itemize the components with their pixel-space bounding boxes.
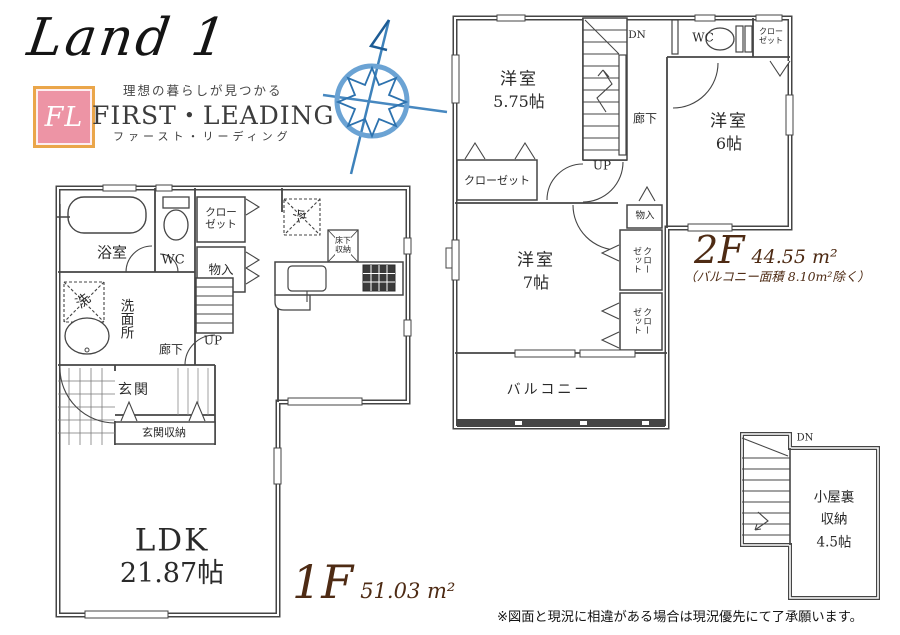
label-up-1f: UP xyxy=(204,334,222,347)
compass-rose-icon xyxy=(323,20,447,174)
label-hallway-1f: 廊下 xyxy=(159,343,183,356)
label-room7-name: 洋室 xyxy=(517,251,555,270)
floor2-area: 44.55 m² xyxy=(752,246,838,268)
company-name-kana: ファースト・リーディング xyxy=(113,128,292,144)
floor1-title-text: 1F xyxy=(292,555,353,609)
label-ldk-size: 21.87帖 xyxy=(120,559,224,589)
label-underfloor: 床下 収納 xyxy=(335,237,351,255)
floor2-plan xyxy=(446,15,793,427)
disclaimer-text: ※図面と現況に相違がある場合は現況優先にて了承願います。 xyxy=(497,606,863,625)
label-closet-1f: クロー ゼット xyxy=(205,207,237,231)
company-name-en: FIRST・LEADING xyxy=(92,96,335,132)
label-entrance-storage: 玄関収納 xyxy=(142,427,186,439)
label-room6-name: 洋室 xyxy=(710,112,748,131)
toilet-1f-icon xyxy=(163,197,189,240)
stairs-2f xyxy=(583,18,627,160)
land1-logo: Land 1 xyxy=(24,8,232,68)
label-closet-v2: クロー ゼット xyxy=(631,308,651,335)
label-balcony: バルコニー xyxy=(507,383,592,399)
basin-icon xyxy=(65,318,109,354)
stairs-1f xyxy=(196,278,233,333)
label-room575-name: 洋室 xyxy=(500,70,538,89)
label-ldk-name: LDK xyxy=(135,524,210,559)
label-wc-2f: WC xyxy=(692,31,714,44)
balcony-wall xyxy=(457,419,665,427)
label-closet-2f: クローゼット xyxy=(464,175,530,187)
label-room6-size: 6帖 xyxy=(716,135,742,153)
fl-logo-badge: FL xyxy=(33,86,95,148)
label-room575-size: 5.75帖 xyxy=(493,93,545,111)
bathtub-icon xyxy=(68,197,146,233)
label-washroom: 洗面所 xyxy=(117,299,132,340)
floor1-title: 1F 51.03 m² xyxy=(292,555,455,609)
label-room7-size: 7帖 xyxy=(523,274,549,292)
label-dn-attic: DN xyxy=(797,432,814,443)
floorplan-page: Land 1 FL 理想の暮らしが見つかる FIRST・LEADING ファース… xyxy=(0,0,900,635)
label-storage-1f: 物入 xyxy=(208,263,233,277)
label-closet-v1: クロー ゼット xyxy=(631,247,651,274)
label-closet-wc-2f: クロー ゼット xyxy=(759,28,783,46)
label-hallway-2f: 廊下 xyxy=(633,112,657,125)
label-dn-2f: DN xyxy=(628,30,646,42)
attic-plan xyxy=(742,434,878,598)
label-wc-1f: WC xyxy=(161,254,184,269)
label-attic-storage: 小屋裏 収納 4.5帖 xyxy=(814,487,855,554)
label-up-2f: UP xyxy=(593,159,611,172)
floor2-area-note: （バルコニー面積 8.10m²除く） xyxy=(684,266,870,285)
label-entrance: 玄関 xyxy=(118,383,150,399)
label-storage-2f: 物入 xyxy=(635,212,654,223)
stove-icon xyxy=(363,265,395,291)
fl-logo-initials: FL xyxy=(45,102,84,133)
floor1-area: 51.03 m² xyxy=(360,579,455,603)
label-bath: 浴室 xyxy=(97,245,127,262)
